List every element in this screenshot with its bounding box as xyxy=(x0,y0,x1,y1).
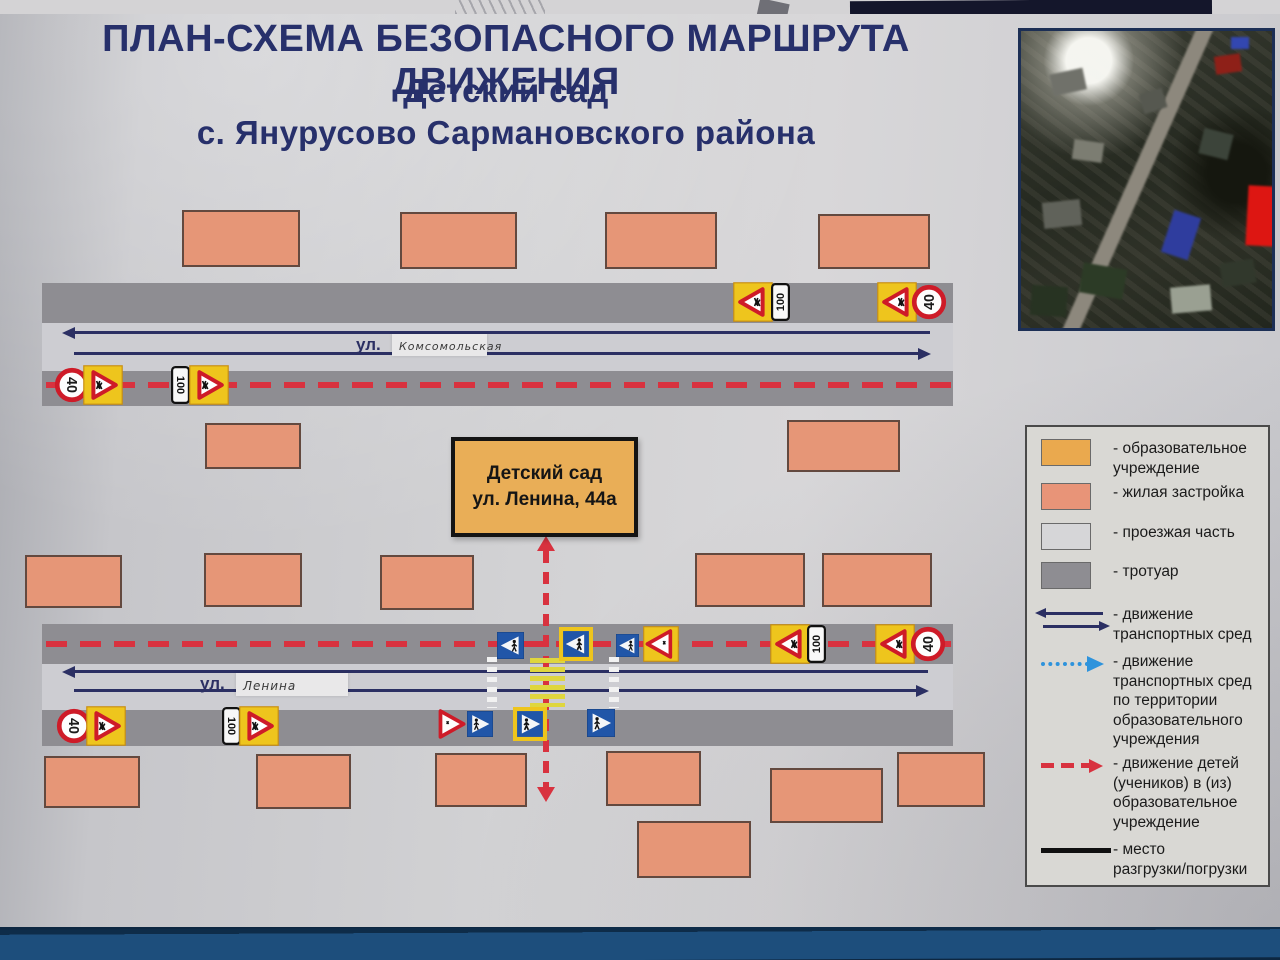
satellite-image xyxy=(1018,28,1275,331)
legend-text: - движение детей xyxy=(1113,754,1268,774)
satellite-detail xyxy=(1245,185,1275,247)
residential-building xyxy=(770,768,883,823)
speed40-sign: 40 xyxy=(910,626,946,662)
warntri-sign xyxy=(433,707,467,741)
svg-text:40: 40 xyxy=(921,636,937,652)
kindergarten-label-line1: Детский сад xyxy=(455,461,634,487)
residential-building xyxy=(695,553,805,607)
svg-text:100: 100 xyxy=(225,717,237,735)
legend-text: учреждения xyxy=(1113,730,1268,750)
legend-text: транспортных сред xyxy=(1113,672,1268,692)
satellite-detail xyxy=(1030,285,1068,317)
svg-text:100: 100 xyxy=(174,376,186,394)
children-sign xyxy=(875,624,915,664)
dist100-sign: 100 xyxy=(771,282,790,322)
legend-text: учреждение xyxy=(1113,459,1268,479)
children-sign xyxy=(733,282,773,322)
crosswalk-edge-marking xyxy=(609,657,619,708)
arrow-head-icon xyxy=(918,348,931,360)
svg-text:100: 100 xyxy=(811,635,823,653)
street-name-komsomolskaya: Комсомольская xyxy=(399,340,502,353)
legend-text: - образовательное xyxy=(1113,439,1268,459)
residential-building xyxy=(44,756,140,808)
residential-building xyxy=(435,753,527,807)
board-bottom-frame xyxy=(0,924,1280,960)
satellite-detail xyxy=(1214,53,1242,74)
legend-item-vehicle-traffic: - движениетранспортных сред xyxy=(1027,605,1268,644)
legend-box: - образовательноеучреждение - жилая заст… xyxy=(1025,425,1270,887)
svg-text:40: 40 xyxy=(63,377,79,393)
route-arrowhead-down-icon xyxy=(537,787,555,802)
route-arrowhead-up-icon xyxy=(537,536,555,551)
speed40-sign: 40 xyxy=(911,284,947,320)
dotted-arrow-icon xyxy=(1041,657,1107,673)
crosswalk-edge-marking xyxy=(487,657,497,708)
street-prefix: ул. xyxy=(356,335,381,355)
pedblue-sign xyxy=(497,632,524,659)
traffic-arrow-left-road2 xyxy=(74,670,928,673)
pedblue-sign xyxy=(587,709,615,737)
children-sign xyxy=(239,706,279,746)
satellite-detail xyxy=(1161,210,1201,260)
double-arrow-icon xyxy=(1041,608,1105,632)
arrow-head-icon xyxy=(916,685,929,697)
legend-text: транспортных сред xyxy=(1113,625,1268,645)
legend-text: - тротуар xyxy=(1113,562,1268,582)
street-name-lenina: Ленина xyxy=(243,679,296,693)
street-prefix: ул. xyxy=(200,674,225,694)
legend-text: - движение xyxy=(1113,652,1268,672)
legend-text: учреждение xyxy=(1113,813,1268,833)
children-sign xyxy=(86,706,126,746)
satellite-detail xyxy=(1042,199,1083,229)
residential-building xyxy=(787,420,900,472)
legend-text: образовательного xyxy=(1113,711,1268,731)
residential-building xyxy=(637,821,751,878)
children-sign xyxy=(83,365,123,405)
residential-building xyxy=(606,751,701,806)
residential-building xyxy=(897,752,985,807)
legend-item-sidewalk: - тротуар xyxy=(1027,562,1268,589)
svg-text:100: 100 xyxy=(775,293,787,311)
satellite-detail xyxy=(1072,139,1104,163)
pedyellow-sign xyxy=(559,627,593,661)
legend-item-loading-place: - месторазгрузки/погрузки xyxy=(1027,840,1268,879)
dist100-sign: 100 xyxy=(807,624,826,664)
sidewalk-bottom-road2 xyxy=(42,710,953,746)
legend-swatch-residential xyxy=(1041,483,1091,510)
poster-subtitle: Детский сад xyxy=(0,72,1012,110)
legend-swatch-sidewalk xyxy=(1041,562,1091,589)
kindergarten-building: Детский сад ул. Ленина, 44а xyxy=(451,437,638,537)
legend-item-residential: - жилая застройка xyxy=(1027,483,1268,510)
sidewalk-top-road1 xyxy=(42,283,953,323)
satellite-detail xyxy=(1049,68,1087,97)
legend-swatch-roadway xyxy=(1041,523,1091,550)
residential-building xyxy=(204,553,302,607)
legend-swatch-school xyxy=(1041,439,1091,466)
legend-item-school: - образовательноеучреждение xyxy=(1027,439,1268,478)
legend-item-children-route: - движение детей (учеников) в (из) образ… xyxy=(1027,754,1268,832)
legend-item-roadway: - проезжая часть xyxy=(1027,523,1268,550)
satellite-detail xyxy=(1231,37,1249,49)
zebra-crosswalk xyxy=(530,658,565,707)
svg-text:40: 40 xyxy=(65,718,81,734)
residential-building xyxy=(605,212,717,269)
residential-building xyxy=(822,553,932,607)
legend-text: - движение xyxy=(1113,605,1268,625)
arrow-head-icon xyxy=(62,327,75,339)
svg-text:40: 40 xyxy=(922,294,938,310)
legend-text: - проезжая часть xyxy=(1113,523,1268,543)
legend-text: по территории xyxy=(1113,691,1268,711)
legend-item-vehicle-on-territory: - движение транспортных сред по территор… xyxy=(1027,652,1268,750)
children-sign xyxy=(770,624,810,664)
traffic-arrow-left-road1 xyxy=(74,331,930,334)
satellite-detail xyxy=(1198,128,1233,160)
paper-edge-marks xyxy=(455,0,545,14)
residential-building xyxy=(818,214,930,269)
residential-building xyxy=(205,423,301,469)
legend-text: разгрузки/погрузки xyxy=(1113,860,1268,880)
poster-photo: ПЛАН-СХЕМА БЕЗОПАСНОГО МАРШРУТА ДВИЖЕНИЯ… xyxy=(0,0,1280,960)
kindergarten-label-line2: ул. Ленина, 44а xyxy=(455,487,634,513)
satellite-detail xyxy=(1219,258,1256,287)
pedblue-sign xyxy=(616,634,639,657)
residential-building xyxy=(182,210,300,267)
residential-building xyxy=(256,754,351,809)
poster-location: с. Янурусово Сармановского района xyxy=(0,114,1012,152)
dist100-sign: 100 xyxy=(171,365,190,405)
red-dashed-arrow-icon xyxy=(1041,759,1107,773)
legend-text: - жилая застройка xyxy=(1113,483,1268,503)
legend-text: образовательное xyxy=(1113,793,1268,813)
residential-building xyxy=(25,555,122,608)
black-line-icon xyxy=(1041,848,1111,853)
pedyellow-sign xyxy=(513,707,547,741)
legend-text: (учеников) в (из) xyxy=(1113,774,1268,794)
residential-building xyxy=(380,555,474,610)
arrow-head-icon xyxy=(62,666,75,678)
satellite-detail xyxy=(1170,284,1212,313)
legend-text: - место xyxy=(1113,840,1268,860)
residential-building xyxy=(400,212,517,269)
children-sign xyxy=(189,365,229,405)
warnyellow-sign xyxy=(643,626,679,662)
pedblue-sign xyxy=(467,711,493,737)
